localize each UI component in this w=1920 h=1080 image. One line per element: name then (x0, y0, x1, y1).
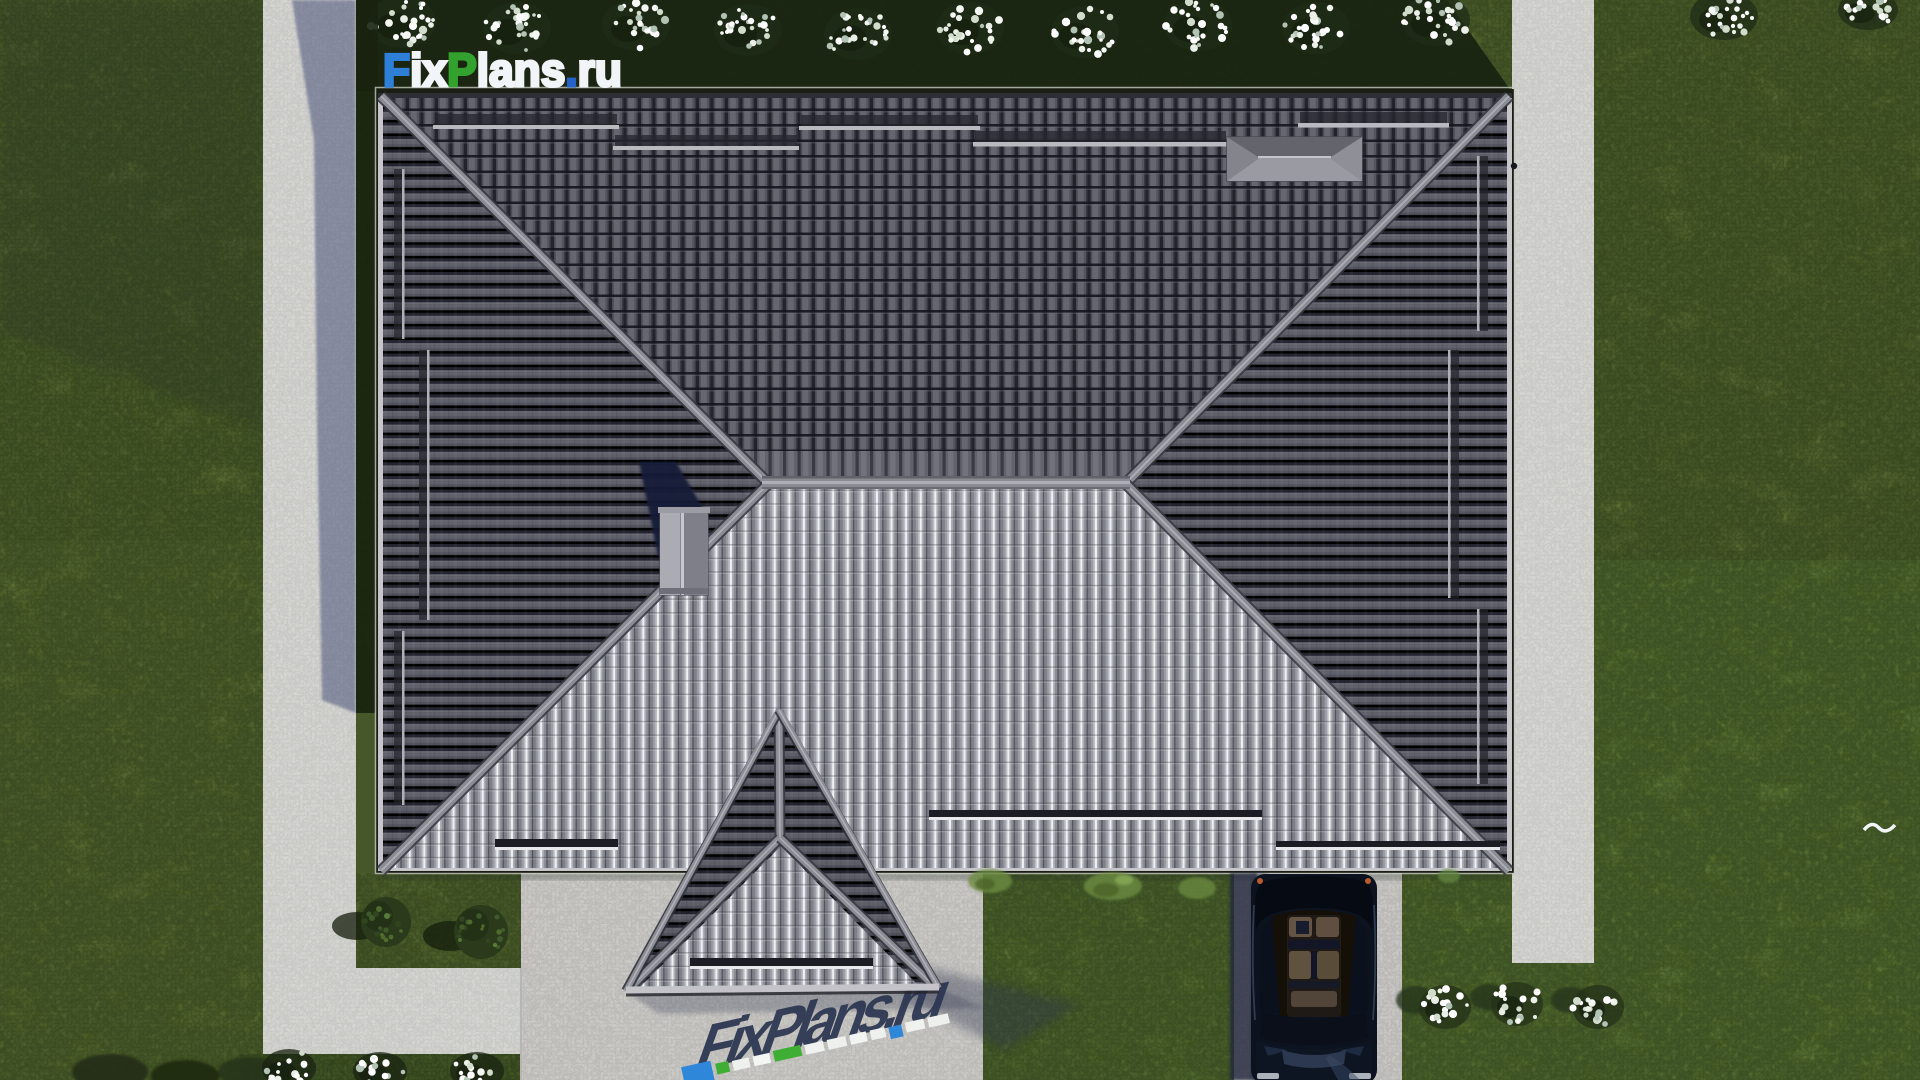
svg-text:FixPlans.ru: FixPlans.ru (383, 44, 622, 96)
